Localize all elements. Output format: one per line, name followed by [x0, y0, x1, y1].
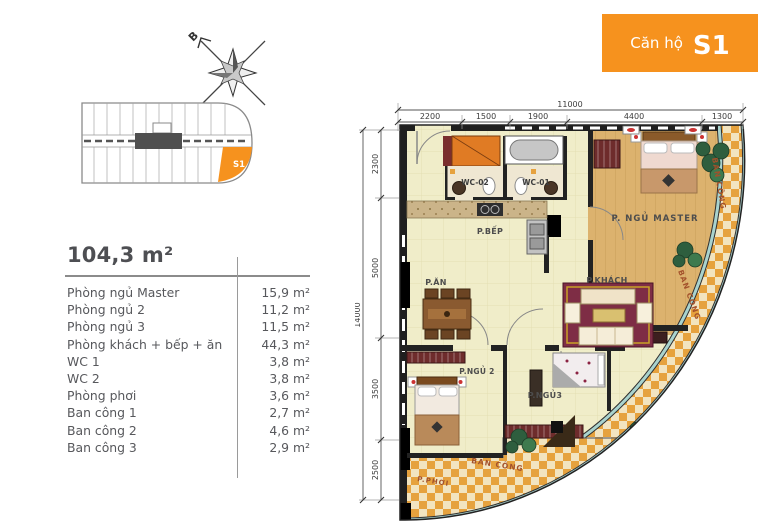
living-label: P.KHÁCH: [586, 274, 627, 285]
summary-column-divider: [237, 257, 238, 478]
bed2: [408, 377, 466, 445]
table-row: Phòng phơi3,6 m²: [65, 387, 310, 404]
dim-seg: 4400: [624, 112, 644, 121]
room-label: WC 1: [65, 354, 100, 369]
room-label: Ban công 1: [65, 405, 137, 420]
balcony-column: [551, 421, 563, 433]
room-label: Phòng ngủ 3: [65, 319, 145, 334]
bathtub: [505, 136, 563, 164]
dim-seg: 1500: [476, 112, 496, 121]
compass-north-label: B: [186, 29, 201, 44]
bed3-dresser: [530, 370, 542, 406]
room-area: 44,3 m²: [261, 337, 310, 352]
bed3: [553, 353, 605, 387]
wc01-door-gap: [513, 197, 531, 201]
table-row: Phòng khách + bếp + ăn44,3 m²: [65, 336, 310, 353]
room-area: 4,6 m²: [269, 423, 310, 438]
key-plan: S1: [70, 95, 265, 200]
room-label: WC 2: [65, 371, 100, 386]
unit-badge-label: Căn hộ: [630, 34, 683, 52]
bed2-wardrobe: [407, 352, 465, 363]
table-row: Phòng ngủ Master15,9 m²: [65, 284, 310, 301]
table-row: WC 13,8 m²: [65, 353, 310, 370]
room-area: 2,9 m²: [269, 440, 310, 455]
bed2-label: P.NGỦ 2: [459, 366, 494, 376]
north-arrow-icon: [198, 38, 211, 48]
table-row: Ban công 24,6 m²: [65, 422, 310, 439]
dim-seg: 1900: [528, 112, 548, 121]
room-area: 3,6 m²: [269, 388, 310, 403]
dim-seg: 5000: [371, 258, 380, 278]
summary-divider: [65, 275, 310, 277]
room-label: Phòng ngủ 2: [65, 302, 145, 317]
master-bed: [631, 132, 707, 193]
room-label: Ban công 2: [65, 423, 137, 438]
unit-badge-code: S1: [693, 31, 730, 61]
dim-total-height: 14000: [355, 302, 362, 327]
highlighted-unit-label: S1: [233, 160, 245, 170]
dim-seg: 3500: [371, 379, 380, 399]
table-row: Ban công 12,7 m²: [65, 404, 310, 421]
room-area: 3,8 m²: [269, 371, 310, 386]
wardrobe-entry: [452, 136, 500, 166]
dining-set: [423, 289, 471, 339]
dim-total-width: 11000: [557, 100, 582, 109]
room-label: Phòng khách + bếp + ăn: [65, 337, 222, 352]
table-row: WC 23,8 m²: [65, 370, 310, 387]
floorplan-page: Căn hộ S1 B: [0, 0, 760, 531]
room-label: Phòng ngủ Master: [65, 285, 179, 300]
wc01-label: WC-01: [522, 178, 550, 187]
area-summary: 104,3 m² Phòng ngủ Master15,9 m² Phòng n…: [65, 243, 310, 456]
room-area: 3,8 m²: [269, 354, 310, 369]
dim-seg: 2300: [371, 154, 380, 174]
room-area: 2,7 m²: [269, 405, 310, 420]
core-block: [135, 133, 182, 149]
table-row: Ban công 32,9 m²: [65, 439, 310, 456]
core-lobby: [153, 123, 171, 133]
room-label: Ban công 3: [65, 440, 137, 455]
room-area: 15,9 m²: [261, 285, 310, 300]
cooktop: [477, 203, 503, 216]
master-wardrobe: [594, 140, 620, 168]
wc02-door-gap: [455, 197, 473, 201]
living-set: [563, 283, 653, 347]
unit-badge: Căn hộ S1: [602, 14, 758, 72]
dim-seg: 1300: [712, 112, 732, 121]
dim-seg: 2200: [420, 112, 440, 121]
dimension-left: 14000 2300 5000 3500 2500: [355, 127, 400, 503]
dining-label: P.ĂN: [425, 276, 447, 287]
floor-plan: WC-02 WC-01 P.BẾP P. NGỦ MASTER P.ĂN P.K…: [355, 85, 760, 531]
entry-cabinet: [443, 136, 452, 166]
dim-seg: 2500: [371, 460, 380, 480]
kitchen-sink: [527, 220, 547, 254]
room-area: 11,2 m²: [261, 302, 310, 317]
wc02-label: WC-02: [461, 178, 489, 187]
room-label: Phòng phơi: [65, 388, 136, 403]
total-area-heading: 104,3 m²: [67, 243, 310, 267]
room-area: 11,5 m²: [261, 319, 310, 334]
table-row: Phòng ngủ 211,2 m²: [65, 301, 310, 318]
table-row: Phòng ngủ 311,5 m²: [65, 318, 310, 335]
